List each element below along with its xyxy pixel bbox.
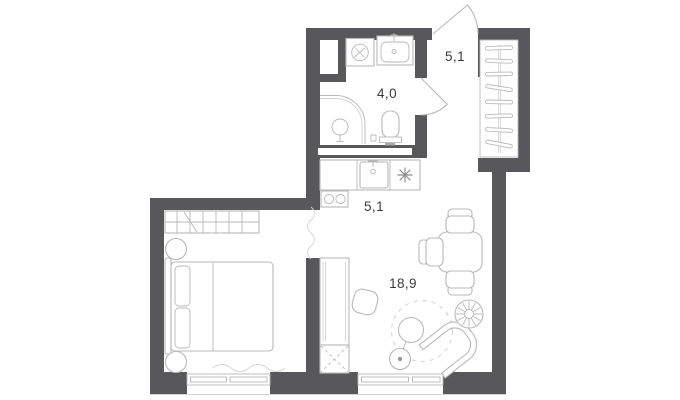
bedroom (165, 207, 315, 373)
cabinet-outline (320, 258, 349, 345)
wall (150, 198, 164, 395)
tall-cabinet (320, 258, 349, 345)
washing-machine (346, 39, 374, 67)
chair-seat (426, 238, 443, 266)
wall (306, 258, 320, 375)
cooktop (321, 191, 348, 207)
lamp-shade (399, 318, 424, 343)
dining-table (438, 232, 482, 272)
pillow (175, 266, 190, 306)
wall (150, 372, 187, 395)
chair-seat (446, 271, 474, 288)
ventilation-box (320, 345, 349, 373)
shower (320, 96, 376, 145)
hanger (485, 72, 512, 76)
wall-duct-slot (318, 148, 412, 155)
curtain-doorway (308, 207, 315, 259)
wall (518, 28, 530, 172)
entrance-door (433, 5, 478, 34)
window (358, 374, 443, 385)
shower-stand (337, 135, 344, 142)
cooktop-body (321, 191, 348, 207)
curtain-window (213, 365, 285, 372)
toilet-tank (380, 137, 402, 143)
double-bed (165, 258, 273, 354)
pillow (175, 308, 190, 348)
wall (492, 158, 506, 395)
wall (270, 372, 358, 395)
shower-enclosure-inner (320, 99, 362, 145)
nightstand (166, 239, 187, 260)
hall-wardrobe-outline (480, 40, 518, 157)
bathroom-area-label: 4,0 (377, 86, 397, 101)
wall (443, 372, 506, 395)
window-frame (358, 374, 443, 385)
pouf (350, 287, 379, 316)
wall (150, 198, 320, 210)
bathroom-sink (377, 33, 413, 65)
toilet-bowl (382, 111, 399, 138)
dining-set (419, 209, 482, 295)
hanger (485, 127, 512, 132)
wall (318, 74, 346, 82)
hanger (485, 114, 512, 119)
hall-wardrobe (480, 40, 518, 157)
entrance-door-leaf (433, 5, 478, 34)
floor-plan-svg: 5,1 4,0 5,1 18,9 (0, 0, 680, 400)
hall-area-label: 5,1 (445, 49, 465, 64)
shower-head (332, 119, 348, 135)
headboard (165, 258, 171, 354)
lamp-pole (398, 357, 402, 361)
plant (455, 300, 483, 328)
hanger (485, 46, 512, 51)
bedroom-wardrobe (165, 211, 259, 233)
floor-plan: 5,1 4,0 5,1 18,9 (0, 0, 680, 400)
toilet-base (385, 143, 395, 146)
window-frame (187, 374, 270, 385)
shower-drain (371, 135, 376, 141)
toilet (380, 111, 402, 146)
living-area-label: 18,9 (389, 276, 417, 291)
bathroom-door-leaf (421, 78, 447, 115)
nightstand (166, 352, 187, 373)
wall (415, 40, 427, 78)
chair-seat (446, 216, 474, 233)
window (187, 374, 270, 385)
hob-symbol (398, 168, 413, 183)
hanger (485, 100, 512, 104)
hanger (485, 59, 512, 64)
kitchen-area-label: 5,1 (364, 199, 384, 214)
wall (306, 28, 320, 210)
